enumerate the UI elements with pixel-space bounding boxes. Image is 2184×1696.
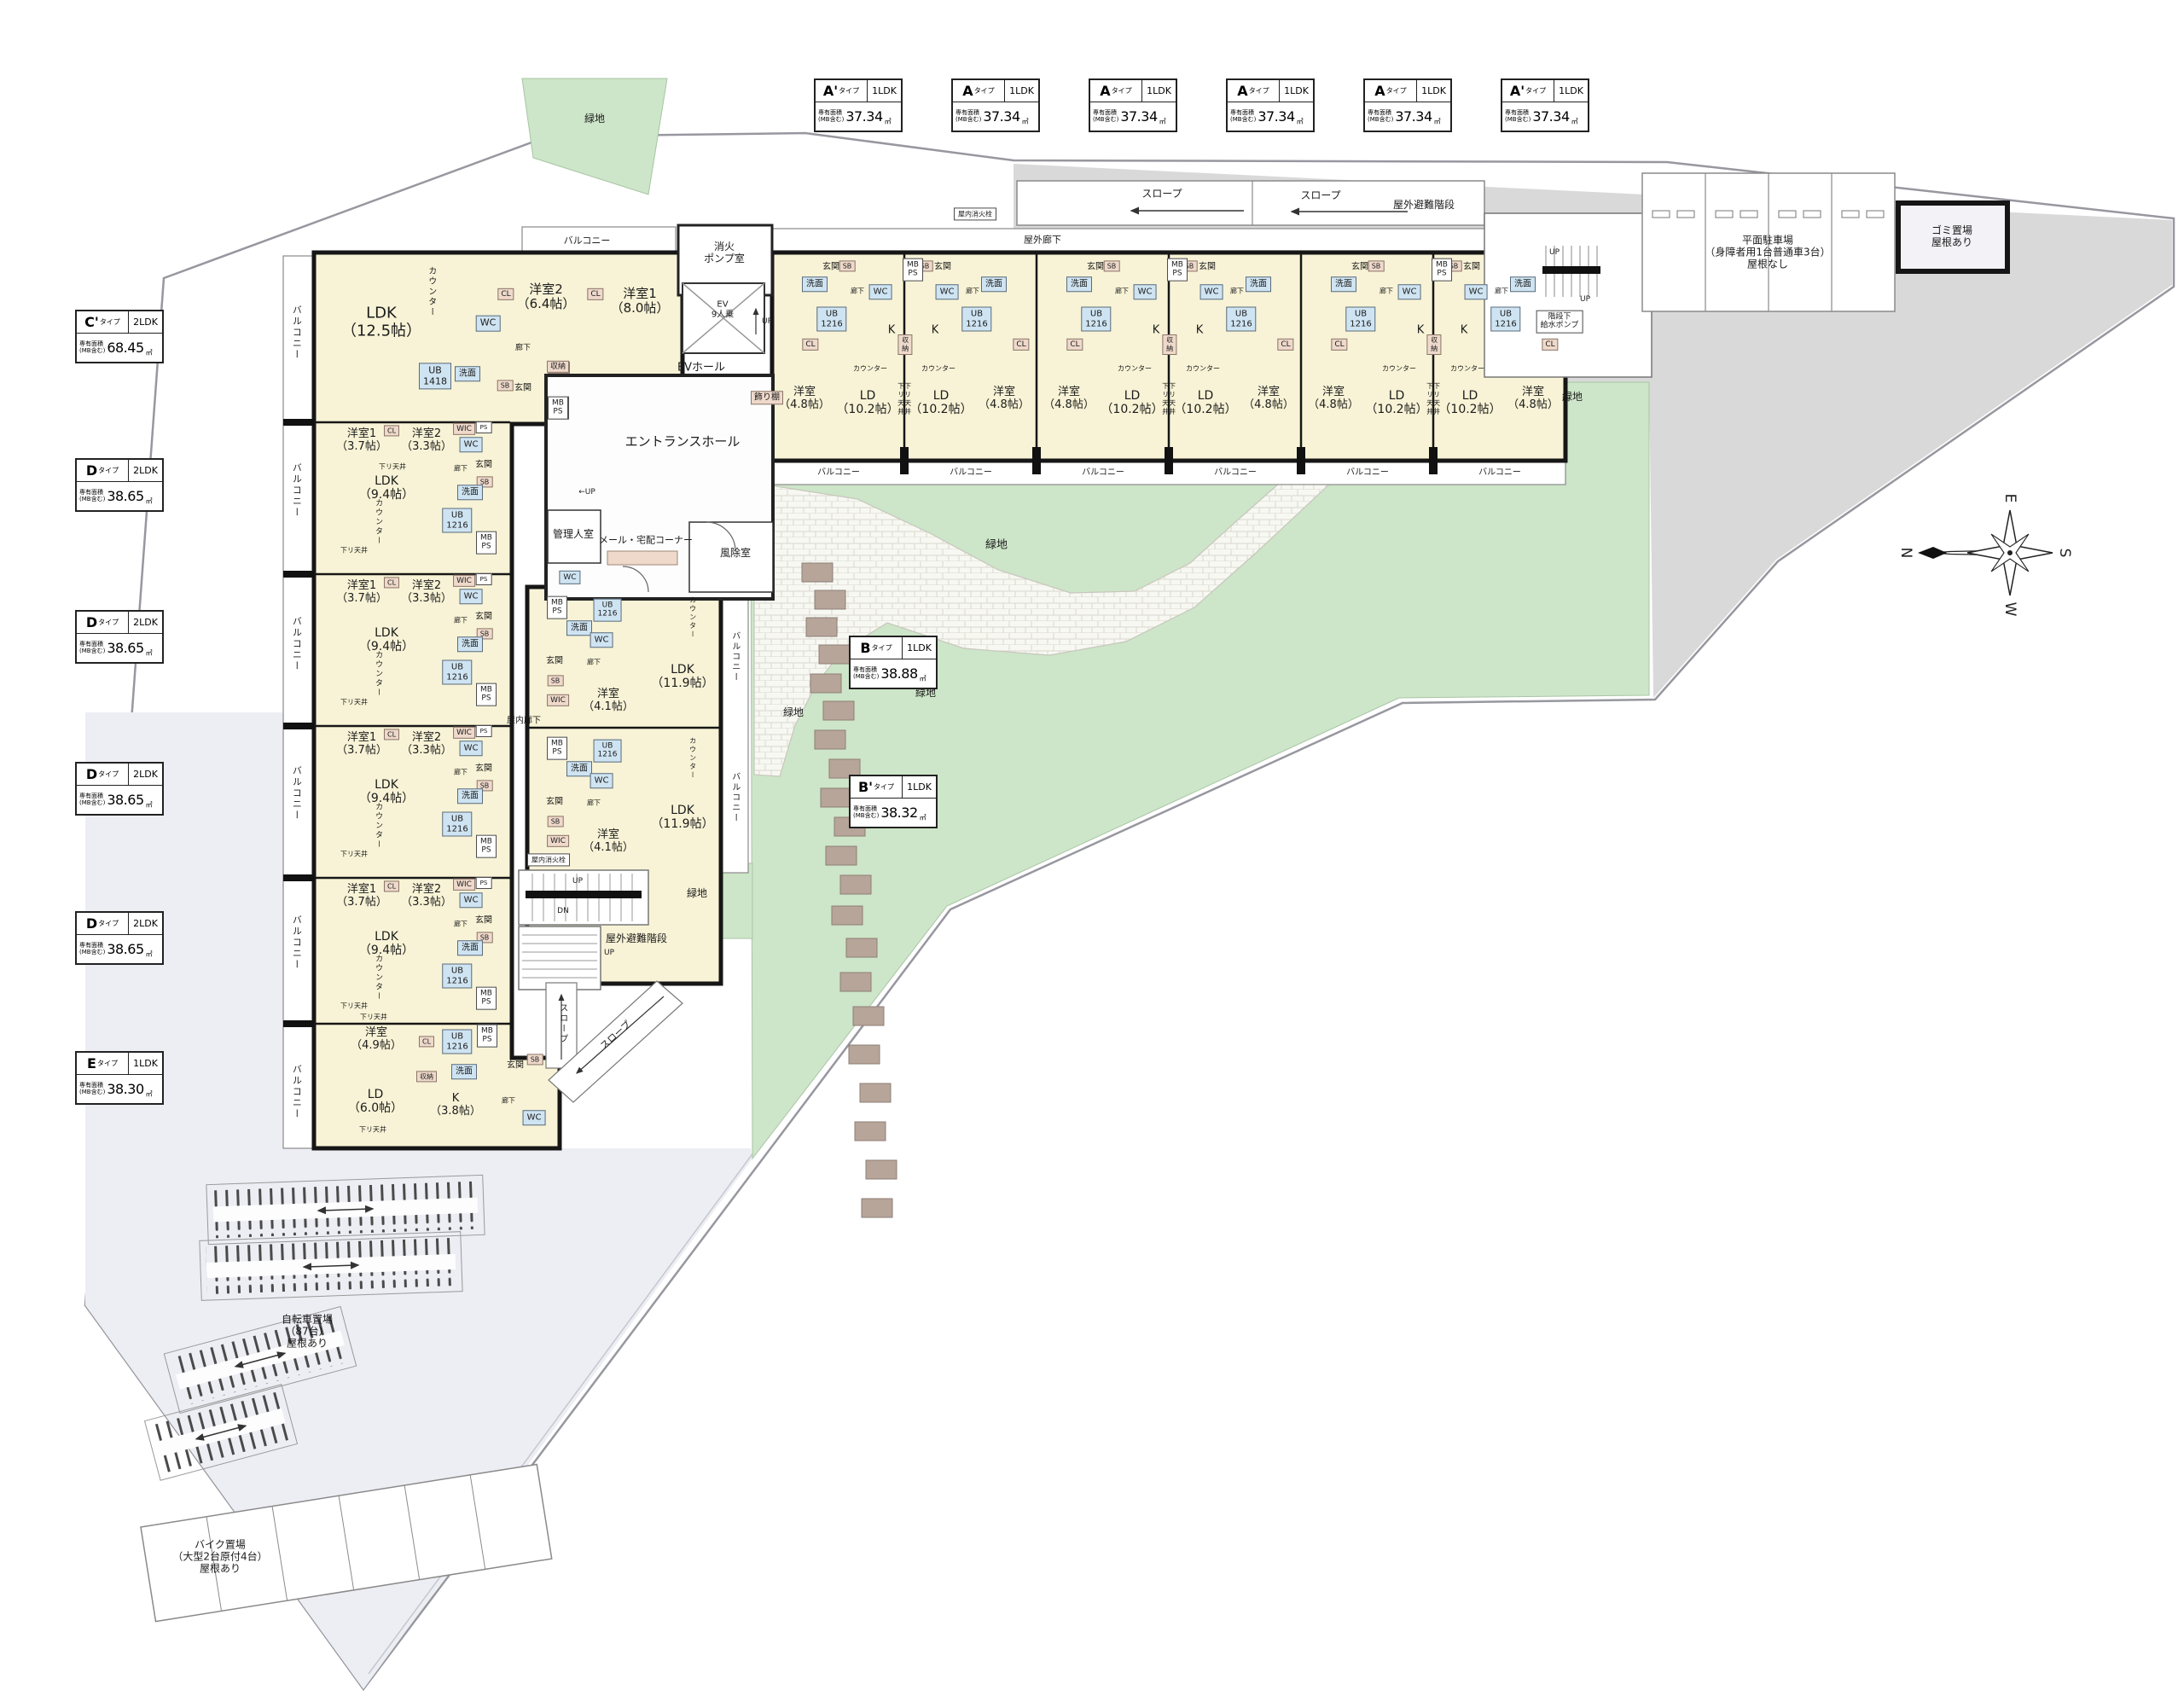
west-balcony-strip	[283, 256, 314, 1148]
east-corridor-strip	[772, 229, 1565, 251]
flat-parking	[1642, 173, 1895, 311]
compass-rose: E S W N	[1897, 494, 2073, 617]
windbreak-room	[689, 522, 773, 592]
floor-plan-page: { "compass": {"n":"N","e":"E","s":"S","w…	[0, 0, 2184, 1696]
south-stair-2	[519, 926, 601, 990]
ramp-corridor	[1017, 181, 1484, 225]
north-balcony-strip	[522, 227, 676, 253]
compass-n: N	[1897, 548, 1914, 559]
manager-room	[548, 510, 601, 563]
east-stair-block	[1484, 213, 1652, 377]
site-plan-drawing: E S W N	[0, 0, 2184, 1696]
compass-w: W	[2001, 602, 2018, 617]
b-balcony-strip	[721, 591, 748, 873]
compass-s: S	[2056, 549, 2073, 558]
compass-e: E	[2001, 494, 2018, 503]
garbage-room	[1898, 203, 2007, 271]
green-area-garden	[751, 382, 1649, 1159]
